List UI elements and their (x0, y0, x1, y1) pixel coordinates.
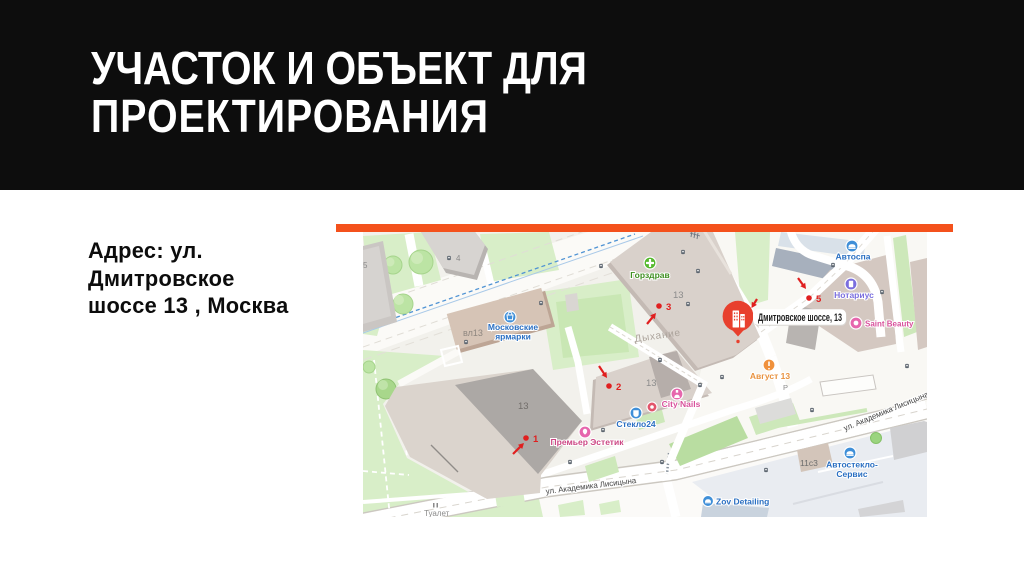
svg-text:Московские: Московские (488, 322, 538, 332)
svg-text:4: 4 (456, 254, 461, 263)
svg-text:вл13: вл13 (463, 328, 483, 338)
svg-text:13: 13 (646, 378, 657, 389)
svg-text:Премьер Эстетик: Премьер Эстетик (551, 437, 625, 447)
svg-text:P: P (783, 383, 788, 392)
svg-text:Дмитровское шоссе, 13: Дмитровское шоссе, 13 (758, 312, 842, 324)
svg-text:Zov Detailing: Zov Detailing (716, 497, 769, 507)
svg-text:3: 3 (666, 302, 671, 313)
svg-text:City Nails: City Nails (662, 399, 701, 409)
svg-text:Saint Beauty: Saint Beauty (865, 320, 914, 329)
svg-text:ярмарки: ярмарки (495, 332, 531, 342)
svg-text:13: 13 (673, 290, 684, 301)
svg-text:Август 13: Август 13 (750, 371, 790, 381)
svg-text:13: 13 (518, 401, 529, 412)
svg-text:Автоспа: Автоспа (836, 252, 871, 262)
svg-text:4: 4 (748, 312, 753, 322)
svg-text:Нотариус: Нотариус (834, 290, 874, 300)
svg-text:2: 2 (616, 382, 621, 393)
svg-text:Сервис: Сервис (836, 469, 868, 479)
svg-text:Стекло24: Стекло24 (616, 419, 656, 429)
svg-text:Автостекло-: Автостекло- (826, 460, 878, 470)
svg-text:11с3: 11с3 (800, 458, 818, 468)
svg-text:Туалет: Туалет (424, 509, 450, 517)
svg-text:Горздрав: Горздрав (630, 270, 669, 280)
svg-text:5: 5 (816, 294, 822, 305)
svg-text:5: 5 (363, 261, 368, 270)
svg-text:1: 1 (533, 434, 539, 445)
